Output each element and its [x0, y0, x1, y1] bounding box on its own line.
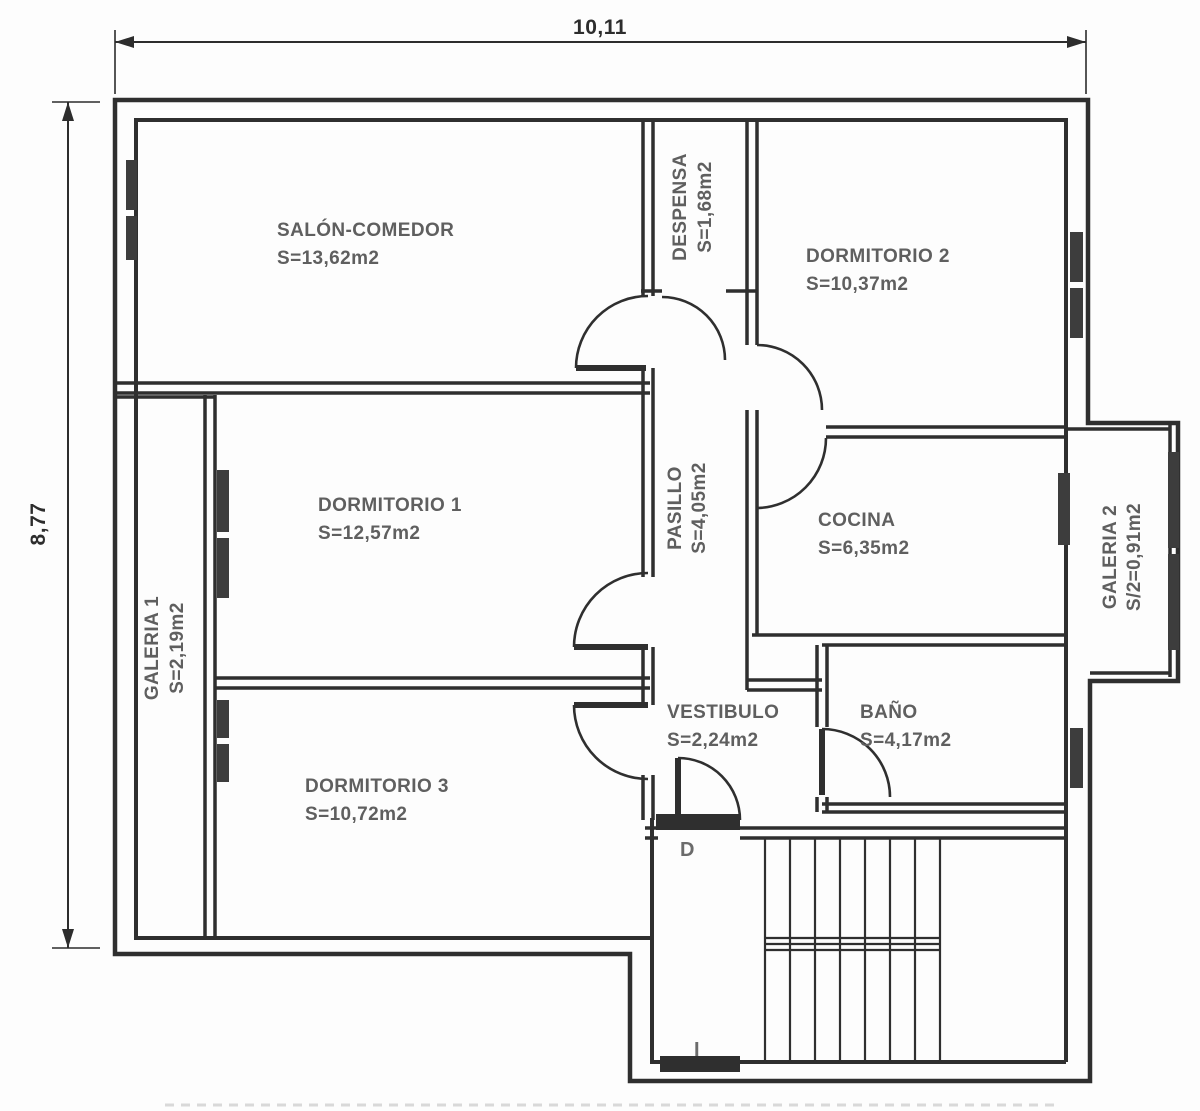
room-area: S=4,05m2	[689, 462, 710, 553]
arrow-right-icon	[1067, 36, 1086, 48]
room-name: DORMITORIO 2	[806, 246, 950, 267]
room-name: DORMITORIO 3	[305, 776, 449, 797]
floor-plan-page: 10,11 8,77	[0, 0, 1200, 1111]
room-label-pasillo: PASILLO S=4,05m2	[665, 462, 710, 553]
window-dormitorio3-icon	[217, 700, 229, 738]
door-cocina	[756, 438, 826, 508]
room-area: S=10,72m2	[305, 804, 407, 825]
room-label-cocina: COCINA S=6,35m2	[818, 510, 909, 559]
room-area: S=12,57m2	[318, 523, 420, 544]
room-label-despensa: DESPENSA S=1,68m2	[670, 153, 716, 261]
window-salon-icon	[126, 160, 137, 210]
dimension-top: 10,11	[115, 16, 1086, 94]
room-label-dormitorio-2: DORMITORIO 2 S=10,37m2	[806, 246, 950, 295]
window-dormitorio1-icon	[217, 470, 229, 532]
window-salon-icon	[126, 216, 137, 260]
stairs: D I	[680, 838, 940, 1062]
room-label-salon-comedor: SALÓN-COMEDOR S=13,62m2	[277, 219, 454, 269]
threshold-entrance	[656, 814, 740, 830]
room-label-dormitorio-3: DORMITORIO 3 S=10,72m2	[305, 776, 449, 825]
door-dormitorio-2	[757, 345, 822, 410]
room-label-dormitorio-1: DORMITORIO 1 S=12,57m2	[318, 495, 462, 544]
window-galeria2-icon	[1168, 554, 1179, 650]
room-area: S=13,62m2	[277, 248, 379, 269]
exterior-walls	[115, 100, 1178, 1081]
stair-landing-lines	[765, 938, 940, 950]
room-area: S=1,68m2	[695, 161, 716, 252]
window-cocina-icon	[1058, 473, 1070, 545]
window-dormitorio3-icon	[217, 744, 229, 782]
dimension-width-label: 10,11	[573, 16, 627, 39]
room-name: PASILLO	[665, 466, 686, 550]
arrow-up-icon	[62, 102, 74, 121]
window-galeria2-icon	[1168, 452, 1179, 548]
window-dormitorio2-icon	[1070, 232, 1083, 282]
room-label-bano: BAÑO S=4,17m2	[860, 701, 951, 751]
room-area: S=6,35m2	[818, 538, 909, 559]
room-area: S=2,19m2	[167, 602, 188, 693]
door-dormitorio-3	[574, 705, 648, 779]
room-name: DORMITORIO 1	[318, 495, 462, 516]
door-entrance-vestibulo	[656, 758, 740, 830]
room-area: S/2=0,91m2	[1124, 503, 1145, 611]
floor-plan-canvas: 10,11 8,77	[0, 0, 1200, 1111]
room-label-vestibulo: VESTIBULO S=2,24m2	[667, 702, 779, 751]
door-dormitorio-1	[574, 573, 648, 647]
room-label-galeria-2: GALERIA 2 S/2=0,91m2	[1100, 503, 1145, 611]
room-name: VESTIBULO	[667, 702, 779, 723]
room-name: GALERIA 1	[142, 596, 163, 700]
window-dormitorio1-icon	[217, 538, 229, 598]
stair-letter-up: I	[694, 1039, 700, 1061]
room-name: COCINA	[818, 510, 895, 531]
arrow-left-icon	[115, 36, 134, 48]
door-portal	[660, 1056, 740, 1072]
dimension-height-label: 8,77	[27, 503, 50, 546]
room-area: S=10,37m2	[806, 274, 908, 295]
window-dormitorio2-icon	[1070, 288, 1083, 338]
room-name: DESPENSA	[670, 153, 691, 261]
door-salon	[576, 296, 648, 368]
door-despensa	[662, 297, 725, 360]
interior-walls	[115, 120, 1066, 938]
window-bano-icon	[1070, 728, 1083, 788]
dimension-left: 8,77	[27, 102, 100, 948]
threshold-portal	[660, 1056, 740, 1072]
room-area: S=2,24m2	[667, 730, 758, 751]
room-name: GALERIA 2	[1100, 505, 1121, 609]
stair-letter-down: D	[680, 839, 694, 861]
room-name: BAÑO	[860, 701, 918, 723]
arrow-down-icon	[62, 929, 74, 948]
room-area: S=4,17m2	[860, 730, 951, 751]
room-label-galeria-1: GALERIA 1 S=2,19m2	[142, 596, 188, 700]
room-name: SALÓN-COMEDOR	[277, 219, 454, 241]
